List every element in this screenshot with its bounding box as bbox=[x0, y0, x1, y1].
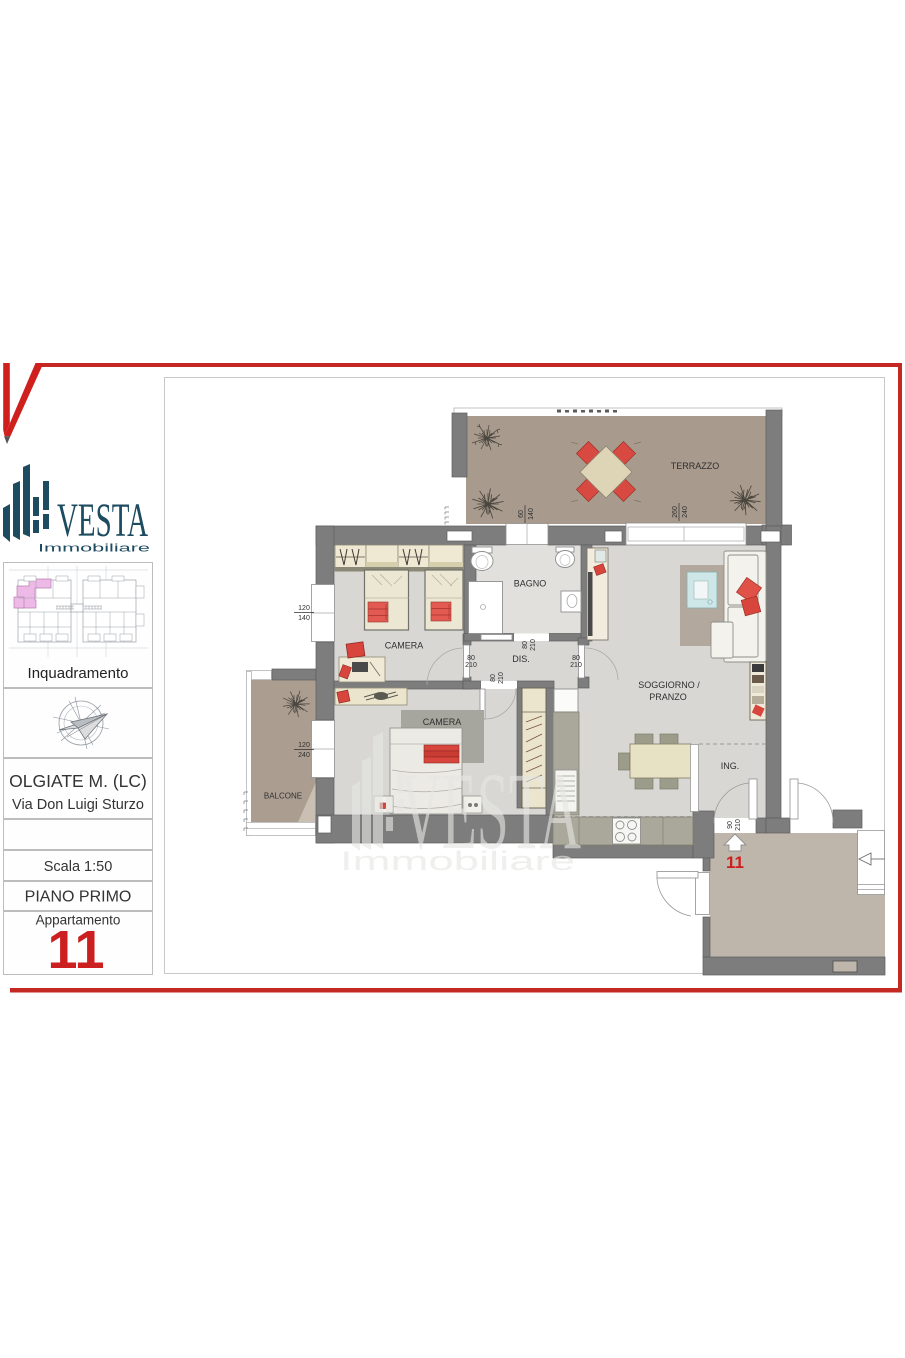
svg-text:Inquadramento: Inquadramento bbox=[28, 665, 129, 682]
svg-text:260: 260 bbox=[672, 506, 679, 518]
svg-text:DIS.: DIS. bbox=[512, 654, 530, 664]
svg-text:240: 240 bbox=[298, 752, 310, 759]
svg-text:210: 210 bbox=[570, 662, 582, 669]
svg-text:80: 80 bbox=[467, 655, 475, 662]
svg-text:Immobiliare: Immobiliare bbox=[38, 543, 150, 555]
svg-text:60: 60 bbox=[518, 510, 525, 518]
svg-text:240: 240 bbox=[682, 506, 689, 518]
svg-text:210: 210 bbox=[735, 819, 742, 831]
svg-text:VESTA: VESTA bbox=[57, 494, 148, 547]
svg-text:210: 210 bbox=[530, 639, 537, 651]
svg-text:Via Don Luigi Sturzo: Via Don Luigi Sturzo bbox=[12, 797, 144, 813]
svg-text:SOGGIORNO /: SOGGIORNO / bbox=[638, 680, 700, 690]
svg-text:210: 210 bbox=[498, 672, 505, 684]
svg-text:80: 80 bbox=[490, 674, 497, 682]
svg-text:BALCONE: BALCONE bbox=[264, 792, 302, 801]
svg-text:Scala 1:50: Scala 1:50 bbox=[44, 859, 113, 875]
svg-text:CAMERA: CAMERA bbox=[423, 717, 462, 727]
svg-text:120: 120 bbox=[298, 742, 310, 749]
svg-text:TERRAZZO: TERRAZZO bbox=[671, 461, 720, 471]
svg-text:120: 120 bbox=[298, 605, 310, 612]
svg-text:OLGIATE M. (LC): OLGIATE M. (LC) bbox=[9, 771, 147, 791]
svg-text:11: 11 bbox=[726, 853, 744, 872]
svg-text:140: 140 bbox=[298, 615, 310, 622]
svg-text:ING.: ING. bbox=[721, 761, 740, 771]
svg-text:210: 210 bbox=[465, 662, 477, 669]
svg-text:11: 11 bbox=[47, 920, 104, 980]
svg-text:80: 80 bbox=[522, 641, 529, 649]
svg-text:90: 90 bbox=[727, 821, 734, 829]
svg-text:Immobiliare: Immobiliare bbox=[340, 846, 575, 876]
svg-text:CAMERA: CAMERA bbox=[385, 641, 424, 651]
svg-text:PRANZO: PRANZO bbox=[649, 692, 687, 702]
svg-text:140: 140 bbox=[528, 508, 535, 520]
svg-text:BAGNO: BAGNO bbox=[514, 579, 547, 589]
svg-text:PIANO PRIMO: PIANO PRIMO bbox=[25, 889, 132, 906]
svg-text:80: 80 bbox=[572, 655, 580, 662]
